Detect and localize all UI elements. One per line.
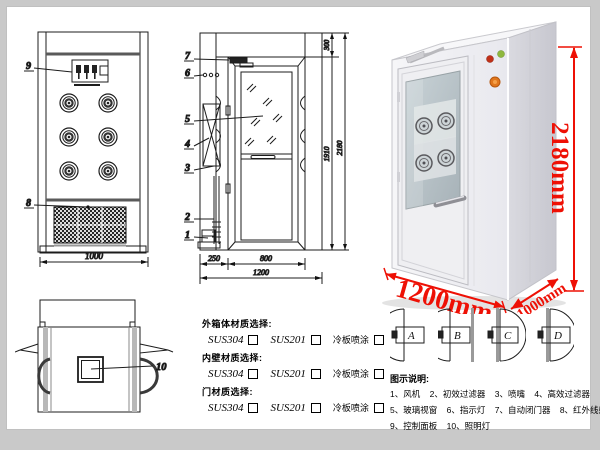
door-type-d: D (534, 306, 574, 364)
svg-text:250: 250 (208, 254, 220, 263)
material-option-label: SUS201 (270, 334, 305, 346)
material-row-title: 门材质选择: (202, 385, 384, 398)
callout-9: 9 (24, 61, 72, 72)
legend-item: 2、初效过滤器 (430, 389, 486, 399)
material-option-label: 冷板喷涂 (333, 367, 369, 380)
material-selection: 外箱体材质选择: SUS304 SUS201 冷板喷涂 内壁材质选择: SUS3… (202, 317, 384, 419)
svg-text:3: 3 (184, 163, 190, 174)
svg-text:7: 7 (185, 51, 191, 62)
legend-line: 1、风机 2、初效过滤器 3、喷嘴 4、高效过滤器 (390, 388, 595, 400)
side-callouts: 7 6 5 4 3 2 1 (184, 51, 263, 241)
checkbox (248, 369, 258, 379)
door-with-glass (226, 57, 305, 250)
legend-title: 图示说明: (390, 372, 595, 385)
door-type-b: B (438, 306, 478, 364)
checkbox (374, 403, 384, 413)
legend-line: 5、玻璃视窗 6、指示灯 7、自动闭门器 8、红外线感应器 (390, 404, 595, 416)
svg-text:5: 5 (185, 114, 190, 125)
svg-text:2180: 2180 (335, 140, 344, 155)
checkbox (248, 403, 258, 413)
green-indicator-light (498, 51, 505, 58)
material-row-options: SUS304 SUS201 冷板喷涂 (208, 333, 384, 346)
legend-item: 5、玻璃视窗 (390, 405, 437, 415)
legend-item: 10、照明灯 (447, 421, 490, 431)
material-row-title: 外箱体材质选择: (202, 317, 384, 330)
legend-item: 8、红外线感应器 (560, 405, 600, 415)
control-panel (72, 60, 108, 85)
svg-text:800: 800 (260, 254, 272, 263)
svg-text:1000: 1000 (85, 251, 104, 261)
base-foot (198, 230, 220, 248)
legend-item: 3、喷嘴 (495, 389, 525, 399)
svg-text:1: 1 (185, 230, 190, 241)
bottom-dimensions: 250 800 1200 (200, 254, 322, 284)
svg-text:2: 2 (184, 212, 190, 223)
product-photo: 2180mm 1200mm 1000mm (378, 2, 590, 314)
door-hinge (397, 92, 400, 102)
checkbox (311, 369, 321, 379)
material-row-options: SUS304 SUS201 冷板喷涂 (208, 401, 384, 414)
parts-legend: 图示说明: 1、风机 2、初效过滤器 3、喷嘴 4、高效过滤器 5、玻璃视窗 6… (390, 372, 595, 436)
air-return-grille (54, 207, 126, 246)
material-option-label: SUS304 (208, 402, 243, 414)
hinge-wings (15, 344, 173, 353)
material-row-title: 内壁材质选择: (202, 351, 384, 364)
svg-text:1200: 1200 (253, 268, 269, 277)
front-view-drawing: 9 8 1000 (22, 26, 182, 288)
checkbox (311, 403, 321, 413)
legend-item: 9、控制面板 (390, 421, 437, 431)
checkbox (374, 369, 384, 379)
air-shower-spec-sheet: { "front_view": { "callout_9": "9", "cal… (0, 0, 600, 450)
ceiling-lamp (78, 357, 103, 382)
material-option-label: SUS304 (208, 368, 243, 380)
svg-text:1910: 1910 (322, 146, 331, 161)
svg-text:9: 9 (26, 61, 31, 72)
svg-text:8: 8 (26, 198, 31, 209)
height-dimensions: 300 1910 2180 (305, 33, 349, 250)
material-option-label: 冷板喷涂 (333, 333, 369, 346)
checkbox (311, 335, 321, 345)
side-view-drawing: 300 1910 2180 250 800 1200 7 6 5 (183, 26, 353, 292)
material-option-label: 冷板喷涂 (333, 401, 369, 414)
legend-line: 9、控制面板 10、照明灯 (390, 420, 595, 432)
svg-text:2180mm: 2180mm (546, 122, 573, 214)
legend-item: 4、高效过滤器 (534, 389, 590, 399)
svg-text:C: C (504, 330, 512, 342)
svg-text:D: D (553, 330, 562, 342)
svg-text:B: B (454, 330, 461, 342)
booth-door (397, 48, 468, 285)
door-type-c: C (486, 306, 526, 364)
side-handles (39, 359, 158, 393)
material-option-label: SUS201 (270, 368, 305, 380)
svg-text:10: 10 (156, 362, 167, 373)
top-view-body (38, 300, 140, 412)
checkbox (248, 335, 258, 345)
svg-text:6: 6 (185, 68, 190, 79)
door-type-a: A (390, 306, 430, 364)
red-indicator-light (487, 56, 494, 63)
material-option-label: SUS304 (208, 334, 243, 346)
checkbox (374, 335, 384, 345)
material-row-options: SUS304 SUS201 冷板喷涂 (208, 367, 384, 380)
svg-text:300: 300 (323, 39, 331, 51)
legend-item: 6、指示灯 (447, 405, 486, 415)
nozzle-grid (60, 94, 117, 180)
legend-item: 1、风机 (390, 389, 420, 399)
material-option-label: SUS201 (270, 402, 305, 414)
legend-item: 7、自动闭门器 (495, 405, 551, 415)
door-hinge (397, 172, 400, 182)
svg-text:4: 4 (184, 139, 190, 150)
svg-text:A: A (407, 330, 415, 342)
door-direction-options: A B C D (390, 306, 590, 364)
top-view-drawing: 10 (15, 295, 180, 430)
hepa-filter-box (203, 104, 220, 166)
